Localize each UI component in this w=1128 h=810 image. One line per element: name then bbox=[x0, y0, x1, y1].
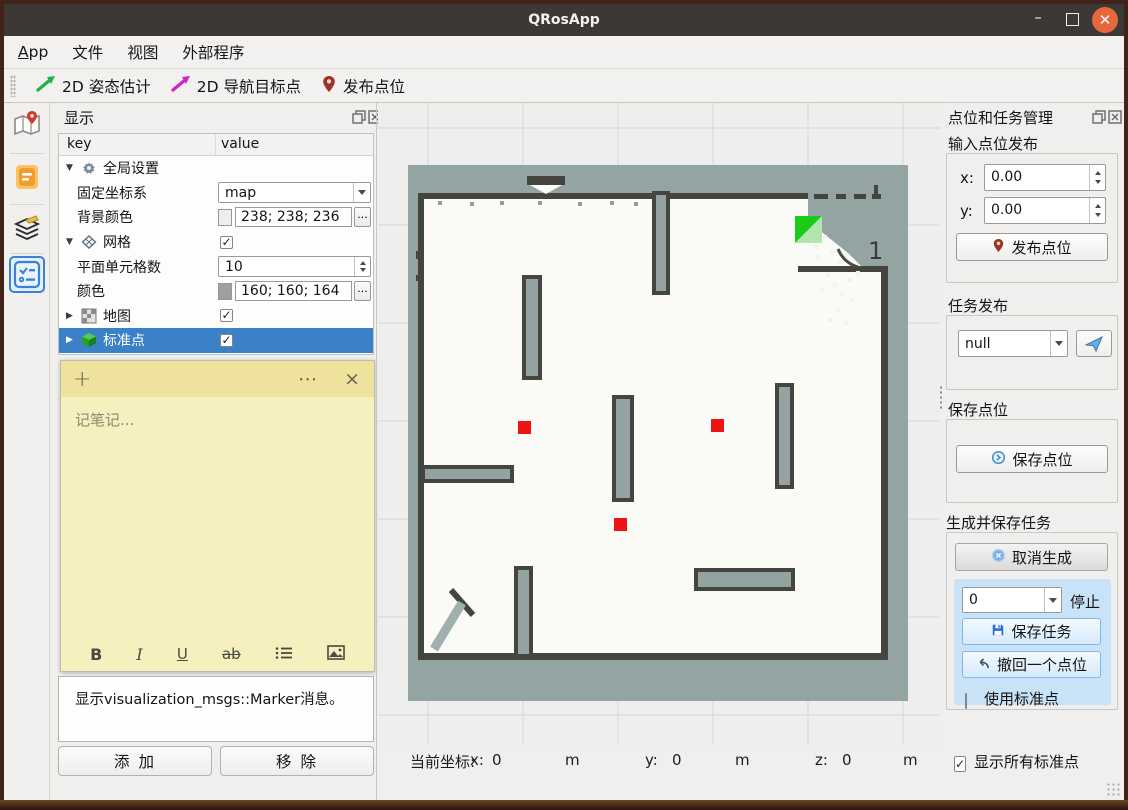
coord-x-label: x: bbox=[470, 751, 484, 769]
task-panel-title: 点位和任务管理 bbox=[948, 107, 1053, 128]
task-publish-label: 任务发布 bbox=[948, 295, 1008, 316]
chevron-down-icon[interactable] bbox=[1044, 588, 1061, 612]
red-pin-icon bbox=[992, 238, 1005, 257]
italic-button[interactable]: I bbox=[136, 645, 142, 664]
tree-key-label: 背景颜色 bbox=[59, 207, 133, 227]
coord-z-value: 0 bbox=[842, 751, 852, 769]
cancel-generate-button[interactable]: 取消生成 bbox=[955, 543, 1108, 571]
tree-row-grid[interactable]: ▼ 网格 ✓ bbox=[59, 230, 373, 255]
sticky-note-header[interactable]: + ⋯ × bbox=[61, 361, 374, 397]
tree-key-label: 固定坐标系 bbox=[59, 183, 147, 203]
nav-goal-tool[interactable]: 2D 导航目标点 bbox=[171, 75, 301, 97]
chevron-down-icon[interactable] bbox=[353, 183, 370, 202]
note-placeholder: 记笔记... bbox=[75, 409, 134, 430]
display-tree: key value ▼ 全局设置 固定坐标系 map 背景颜色 238; 238… bbox=[58, 133, 374, 355]
window-title: QRosApp bbox=[528, 12, 600, 28]
use-standard-points-checkbox[interactable] bbox=[965, 693, 967, 709]
tree-key-label: 全局设置 bbox=[103, 158, 159, 178]
red-pin-icon bbox=[321, 75, 337, 97]
sidebar-divider bbox=[10, 204, 44, 205]
menu-app[interactable]: App bbox=[18, 43, 48, 61]
display-description: 显示visualization_msgs::Marker消息。 bbox=[58, 676, 374, 742]
checklist-icon bbox=[13, 260, 41, 289]
expander-icon[interactable]: ▶ bbox=[66, 311, 76, 321]
show-all-points-checkbox[interactable]: ✓ bbox=[954, 756, 966, 772]
value-column-header[interactable]: value bbox=[216, 134, 373, 155]
tree-key-label: 颜色 bbox=[59, 281, 105, 301]
standard-points-checkbox[interactable]: ✓ bbox=[220, 334, 233, 347]
coord-y-value: 0 bbox=[672, 751, 682, 769]
undo-arrow-icon bbox=[976, 656, 991, 674]
expander-icon[interactable]: ▼ bbox=[66, 163, 76, 173]
sidebar-item-checklist[interactable] bbox=[13, 260, 41, 293]
chevron-down-icon[interactable] bbox=[1050, 331, 1067, 356]
key-column-header[interactable]: key bbox=[59, 134, 216, 155]
color-value-field[interactable]: 160; 160; 164 bbox=[235, 281, 352, 301]
coord-unit: m bbox=[903, 751, 918, 769]
marker-number-label: 1 bbox=[868, 237, 883, 265]
sidebar-item-layers[interactable] bbox=[12, 212, 42, 246]
menubar: App 文件 视图 外部程序 bbox=[4, 36, 1124, 69]
bold-button[interactable]: B bbox=[90, 645, 102, 664]
tree-row-fixed-frame[interactable]: 固定坐标系 map bbox=[59, 181, 373, 206]
task-select-combobox[interactable]: null bbox=[958, 330, 1068, 357]
color-picker-button[interactable]: ... bbox=[354, 207, 371, 227]
add-display-button[interactable]: 添 加 bbox=[58, 746, 212, 776]
add-note-icon[interactable]: + bbox=[73, 367, 298, 392]
send-task-button[interactable] bbox=[1076, 330, 1112, 357]
note-editor[interactable]: 记笔记... bbox=[61, 397, 374, 637]
insert-image-icon[interactable] bbox=[327, 645, 345, 664]
sidebar-item-map[interactable] bbox=[12, 110, 42, 144]
cell-count-spinbox[interactable]: 10 bbox=[218, 256, 371, 277]
tree-key-label: 标准点 bbox=[103, 330, 145, 350]
map-pin-icon bbox=[12, 110, 42, 140]
titlebar[interactable]: QRosApp bbox=[4, 4, 1124, 36]
float-panel-icon[interactable] bbox=[1092, 109, 1106, 123]
coord-z-label: z: bbox=[815, 751, 828, 769]
expander-icon[interactable]: ▶ bbox=[66, 335, 76, 345]
note-close-icon[interactable]: × bbox=[344, 368, 360, 390]
input-publish-label: 输入点位发布 bbox=[948, 133, 1038, 154]
robot-pose-marker bbox=[795, 216, 822, 243]
use-standard-points-label: 使用标准点 bbox=[984, 688, 1059, 709]
grid-checkbox[interactable]: ✓ bbox=[220, 236, 233, 249]
tree-key-label: 网格 bbox=[103, 232, 131, 252]
paper-plane-icon bbox=[1085, 336, 1103, 352]
resize-grip[interactable] bbox=[1106, 782, 1120, 796]
undo-point-button[interactable]: 撤回一个点位 bbox=[962, 651, 1101, 678]
color-swatch bbox=[218, 283, 232, 300]
circle-arrow-icon bbox=[991, 450, 1006, 469]
window-border-right bbox=[1124, 0, 1128, 810]
tree-row-grid-color[interactable]: 颜色 160; 160; 164 ... bbox=[59, 279, 373, 304]
layers-icon bbox=[12, 212, 42, 242]
bullet-list-icon[interactable] bbox=[275, 645, 293, 664]
fixed-frame-combobox[interactable]: map bbox=[218, 182, 371, 203]
publish-point-button[interactable]: 发布点位 bbox=[956, 233, 1108, 261]
color-value-field[interactable]: 238; 238; 236 bbox=[235, 207, 352, 227]
toolbar: 2D 姿态估计 2D 导航目标点 发布点位 bbox=[4, 69, 1124, 103]
map-render-view[interactable]: 1 bbox=[378, 103, 940, 745]
generate-save-label: 生成并保存任务 bbox=[946, 512, 1051, 533]
publish-point-tool[interactable]: 发布点位 bbox=[321, 75, 405, 97]
sticky-note-icon bbox=[12, 162, 42, 192]
map-canvas: 1 bbox=[378, 103, 940, 745]
tree-row-global-options[interactable]: ▼ 全局设置 bbox=[59, 156, 373, 181]
pose-estimate-tool[interactable]: 2D 姿态估计 bbox=[36, 75, 151, 97]
record-circle-icon bbox=[991, 548, 1006, 567]
magenta-arrow-icon bbox=[171, 75, 191, 97]
tree-key-label: 地图 bbox=[103, 306, 131, 326]
display-panel-title: 显示 bbox=[64, 107, 94, 128]
tree-row-plane-cell-count[interactable]: 平面单元格数 10 bbox=[59, 254, 373, 279]
strikethrough-button[interactable]: ab bbox=[222, 645, 241, 663]
x-label: x: bbox=[960, 169, 974, 187]
expander-icon[interactable]: ▼ bbox=[66, 237, 76, 247]
remove-display-button[interactable]: 移 除 bbox=[220, 746, 374, 776]
save-task-button[interactable]: 保存任务 bbox=[962, 618, 1101, 645]
coord-x-value: 0 bbox=[492, 751, 502, 769]
color-picker-button[interactable]: ... bbox=[354, 281, 371, 301]
spinner-arrows[interactable] bbox=[1089, 198, 1105, 223]
icon-sidebar bbox=[4, 103, 50, 800]
save-point-button[interactable]: 保存点位 bbox=[956, 445, 1108, 473]
map-checkbox[interactable]: ✓ bbox=[220, 309, 233, 322]
spinner-arrows[interactable] bbox=[1089, 165, 1105, 190]
minimize-button[interactable]: – bbox=[1028, 10, 1048, 28]
coord-unit: m bbox=[735, 751, 750, 769]
map-layer-icon bbox=[81, 308, 97, 324]
point-count-combobox[interactable]: 0 bbox=[962, 587, 1062, 613]
close-button[interactable]: ✕ bbox=[1092, 7, 1118, 33]
green-arrow-icon bbox=[36, 75, 56, 97]
y-coordinate-spinbox[interactable]: 0.00 bbox=[984, 197, 1106, 224]
tree-row-standard-points[interactable]: ▶ 标准点 ✓ bbox=[59, 328, 373, 353]
y-label: y: bbox=[960, 202, 973, 220]
color-swatch bbox=[218, 209, 232, 226]
underline-button[interactable]: U bbox=[177, 645, 188, 663]
note-format-toolbar: B I U ab bbox=[61, 637, 374, 671]
gear-icon bbox=[81, 160, 97, 176]
coord-y-label: y: bbox=[645, 751, 658, 769]
sticky-note: + ⋯ × 记笔记... B I U ab bbox=[60, 360, 375, 672]
sidebar-item-notes[interactable] bbox=[12, 162, 42, 196]
left-splitter[interactable] bbox=[376, 103, 377, 800]
tree-key-label: 平面单元格数 bbox=[59, 257, 161, 277]
stop-label: 停止 bbox=[1070, 591, 1100, 612]
save-point-label: 保存点位 bbox=[948, 399, 1008, 420]
window-border-bottom bbox=[0, 800, 1128, 810]
maximize-button[interactable] bbox=[1066, 13, 1079, 26]
tree-row-background-color[interactable]: 背景颜色 238; 238; 236 ... bbox=[59, 205, 373, 230]
float-panel-icon[interactable] bbox=[352, 109, 366, 123]
grid-icon bbox=[81, 234, 97, 250]
menu-file[interactable]: 文件 bbox=[72, 41, 103, 63]
marker-layer-icon bbox=[81, 332, 97, 348]
app-window: QRosApp – ✕ App 文件 视图 外部程序 2D 姿态估计 2D 导航… bbox=[0, 0, 1128, 810]
coords-prefix: 当前坐标: bbox=[410, 751, 475, 772]
show-all-points-label: 显示所有标准点 bbox=[974, 751, 1079, 772]
sidebar-divider bbox=[10, 153, 44, 154]
tree-header: key value bbox=[59, 134, 373, 156]
close-panel-icon[interactable] bbox=[1108, 109, 1122, 123]
menu-view[interactable]: 视图 bbox=[127, 41, 158, 63]
menu-external[interactable]: 外部程序 bbox=[182, 41, 244, 63]
sidebar-divider bbox=[10, 253, 44, 254]
note-menu-icon[interactable]: ⋯ bbox=[298, 368, 318, 390]
spinner-arrows[interactable] bbox=[354, 257, 370, 276]
floppy-disk-icon bbox=[991, 623, 1005, 641]
coord-unit: m bbox=[565, 751, 580, 769]
toolbar-drag-handle[interactable] bbox=[10, 75, 16, 97]
x-coordinate-spinbox[interactable]: 0.00 bbox=[984, 164, 1106, 191]
tree-row-map[interactable]: ▶ 地图 ✓ bbox=[59, 304, 373, 329]
